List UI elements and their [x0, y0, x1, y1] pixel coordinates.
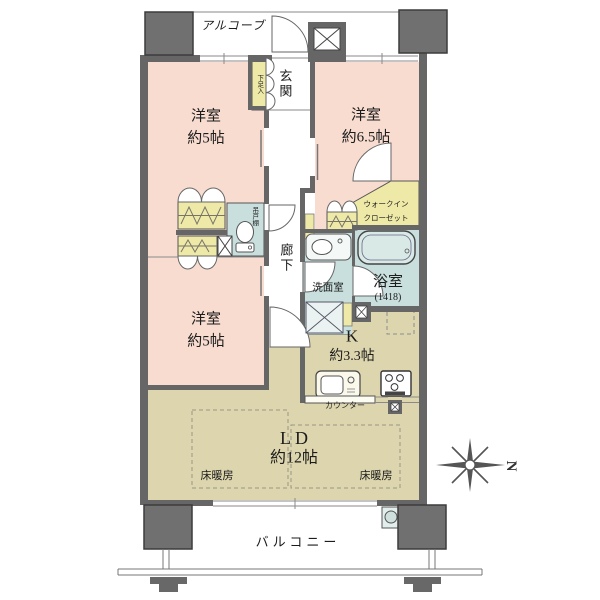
label-kitchen: K [346, 325, 358, 350]
label-bedroom-3: 洋室 約5帖 [187, 309, 225, 353]
label-alcove: アルコーブ [201, 17, 265, 34]
label-floor-heating-left: 床暖房 [201, 469, 234, 485]
balcony-railing [118, 549, 482, 592]
compass-north-label: N [503, 461, 519, 472]
label-washroom: 洗面室 [312, 280, 344, 295]
label-floor-heating-right: 床暖房 [360, 469, 393, 485]
compass-rose: N [436, 438, 519, 492]
room-name: 洋室 [187, 309, 225, 331]
label-bedroom-2: 洋室 約6.5帖 [342, 105, 391, 149]
label-hanging-cupboard: 吊戸棚 [249, 206, 258, 226]
wic-line2: クローゼット [364, 211, 409, 225]
label-kitchen-size: 約3.3帖 [329, 347, 375, 367]
floor-plan: N アルコーブ 玄関 下足入 洋室 約5帖 洋室 約6.5帖 洋室 約5帖 ウォ… [0, 0, 600, 600]
wash-basin [312, 240, 332, 255]
floor-plan-drawing: N [0, 0, 600, 600]
room-size: 約6.5帖 [342, 127, 391, 149]
room-size: 約5帖 [187, 128, 225, 150]
label-entrance: 玄関 [275, 69, 294, 99]
label-bathroom-size: (1418) [375, 291, 402, 306]
wic-line1: ウォークイン [364, 198, 409, 212]
label-living-dining-size: 約12帖 [270, 446, 318, 469]
label-corridor: 廊下 [276, 243, 295, 273]
label-balcony: バルコニー [256, 534, 341, 553]
label-counter: カウンター [325, 400, 365, 412]
label-bedroom-1: 洋室 約5帖 [187, 106, 225, 150]
label-shoe-cabinet: 下足入 [254, 74, 263, 94]
room-name: 洋室 [187, 106, 225, 128]
label-walk-in-closet: ウォークイン クローゼット [364, 198, 409, 225]
room-size: 約5帖 [187, 331, 225, 353]
room-name: 洋室 [342, 105, 391, 127]
